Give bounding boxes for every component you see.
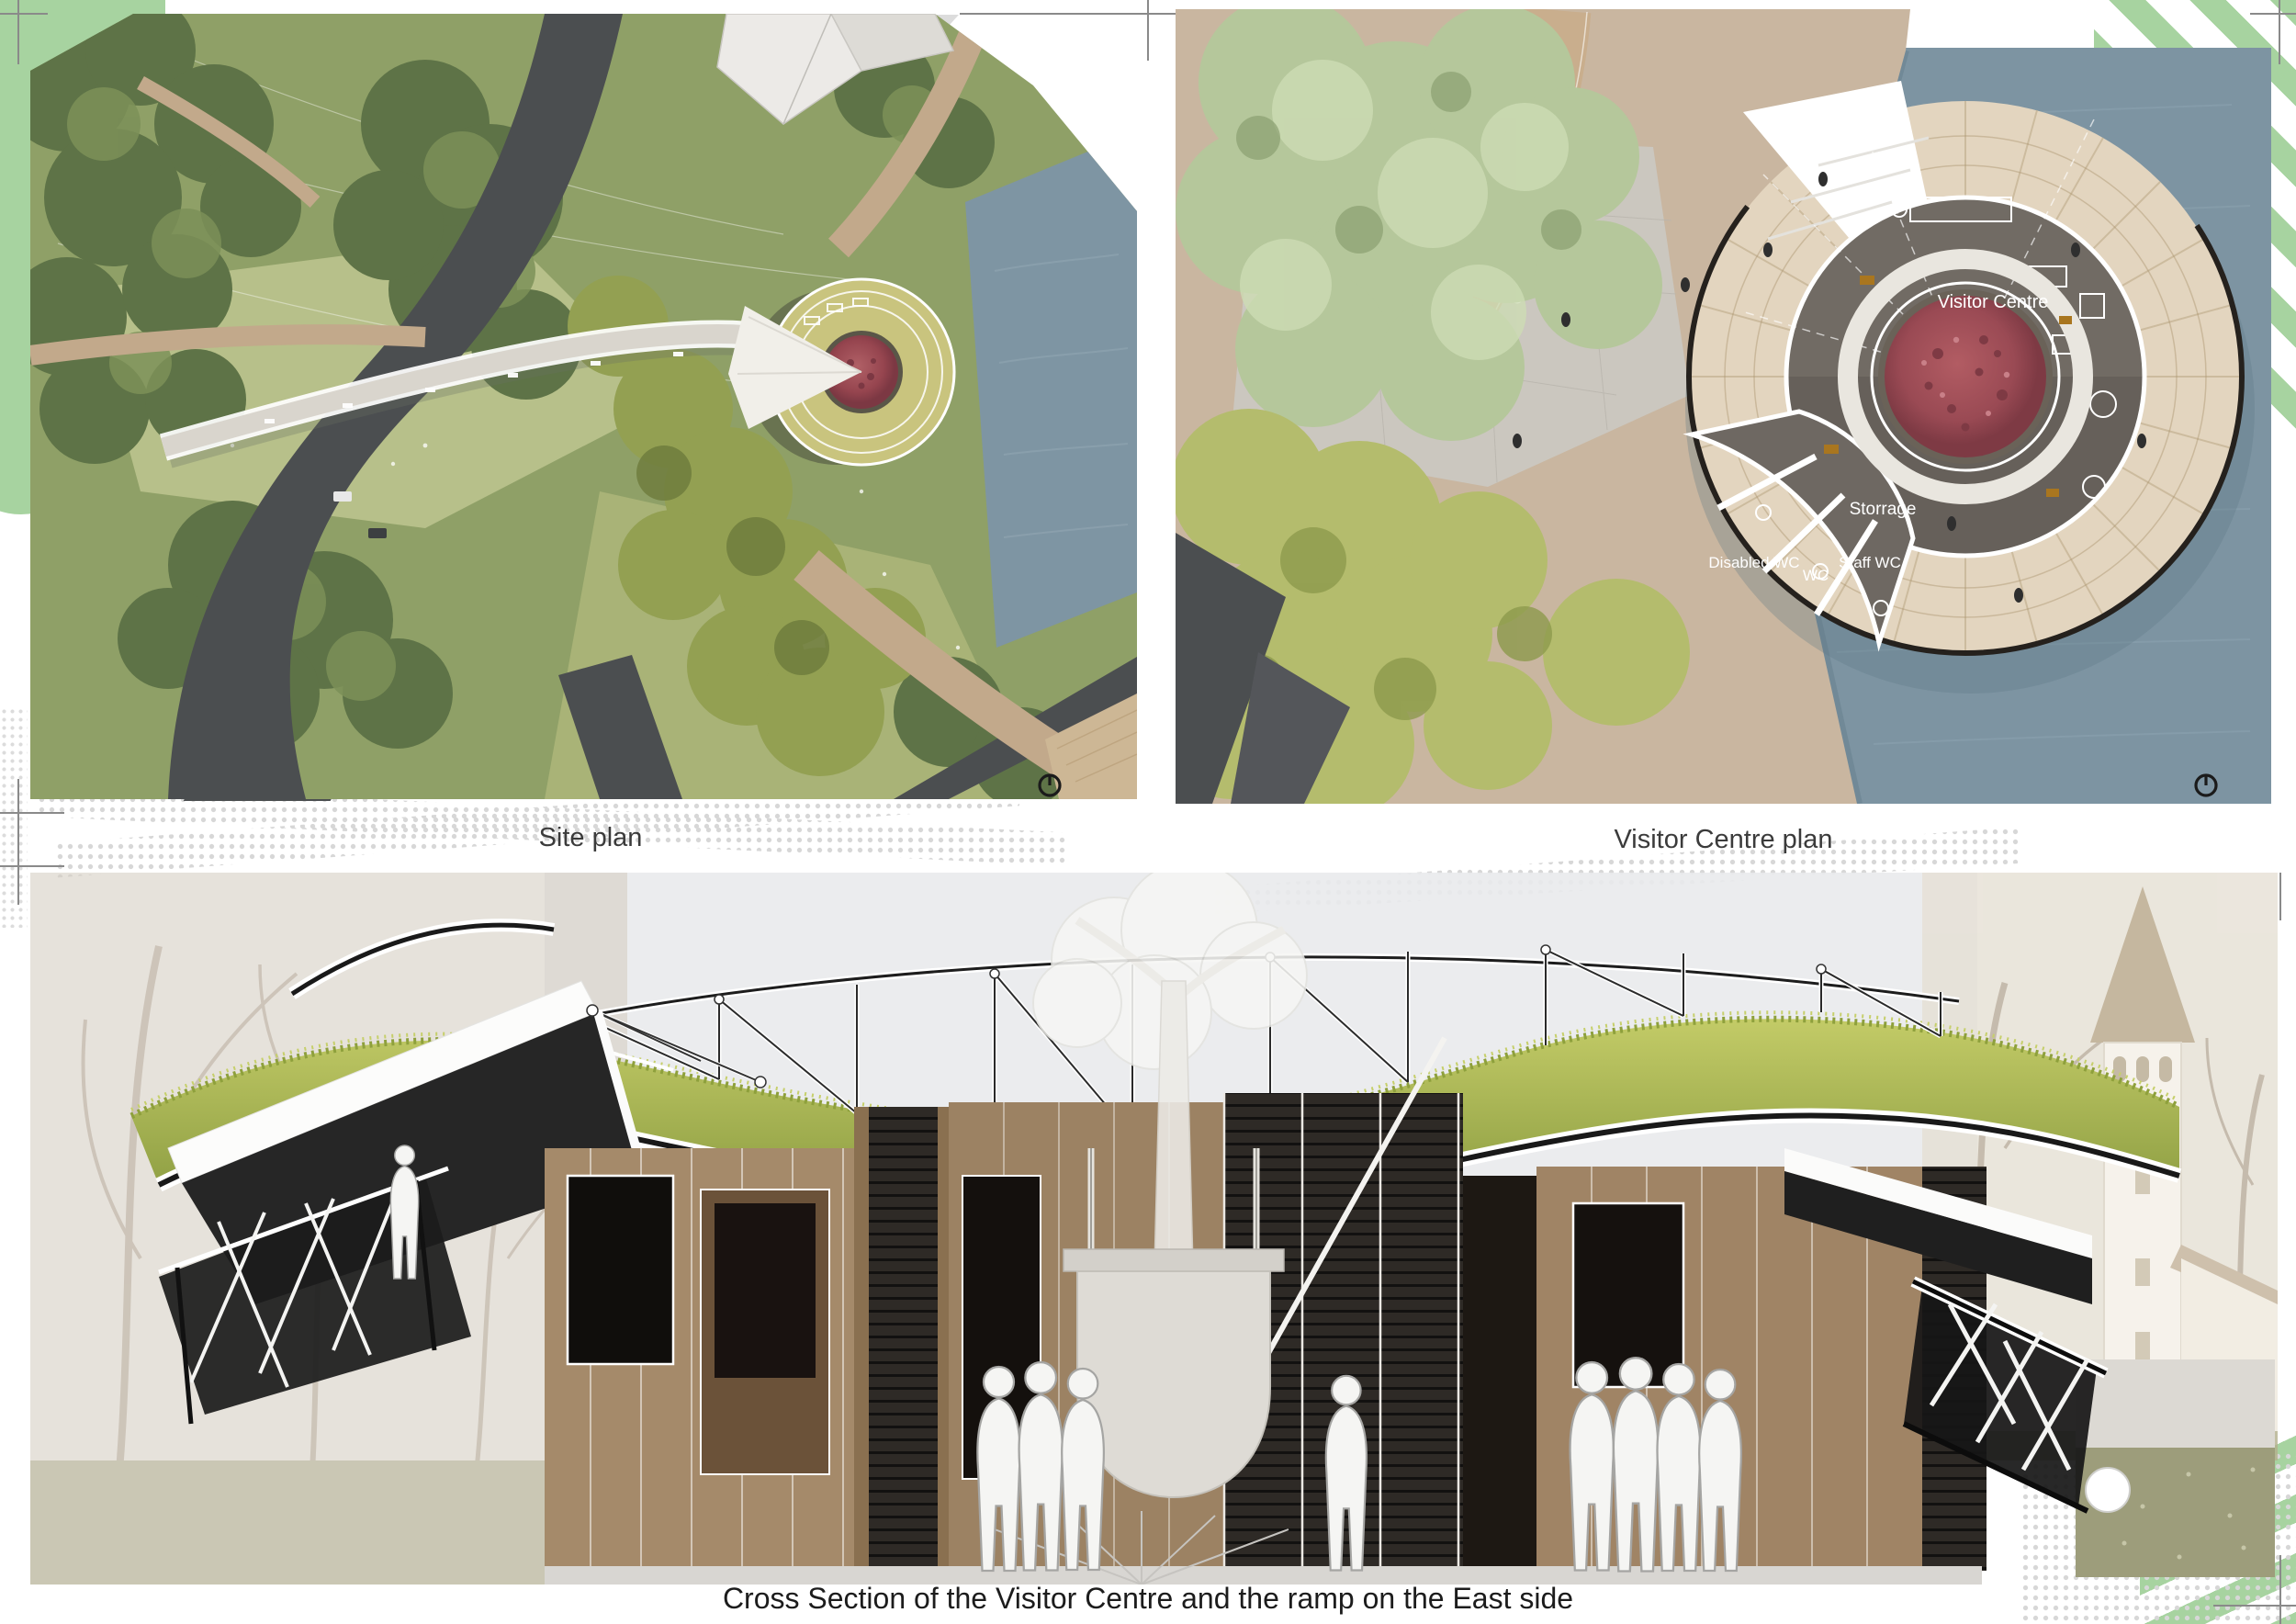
registration-cross-icon: [0, 812, 64, 814]
registration-cross-icon: [2279, 0, 2280, 64]
registration-cross-icon: [17, 834, 19, 905]
site-plan-caption: Site plan: [30, 823, 1151, 853]
halftone-left-strip: [0, 707, 28, 928]
presentation-board: Visitor Centre Storrage Disabled WC WC S…: [0, 0, 2296, 1624]
site-plan-drawing: [30, 14, 1151, 799]
registration-cross-icon: [2279, 873, 2281, 920]
room-label-visitor-centre: Visitor Centre: [1938, 292, 2049, 312]
room-label-disabled-wc: Disabled WC: [1708, 554, 1799, 571]
registration-cross-icon: [17, 0, 19, 64]
room-label-storage: Storrage: [1850, 500, 1917, 519]
room-label-wc: WC: [1803, 567, 1829, 584]
registration-cross-icon: [0, 865, 64, 867]
cross-section-caption: Cross Section of the Visitor Centre and …: [0, 1582, 2296, 1616]
room-label-staff-wc: Staff WC: [1839, 554, 1901, 571]
visitor-centre-plan-drawing: Visitor Centre Storrage Disabled WC WC S…: [1176, 9, 2271, 804]
visitor-centre-plan-caption: Visitor Centre plan: [1176, 825, 2271, 855]
cross-section-drawing: [30, 873, 2278, 1585]
